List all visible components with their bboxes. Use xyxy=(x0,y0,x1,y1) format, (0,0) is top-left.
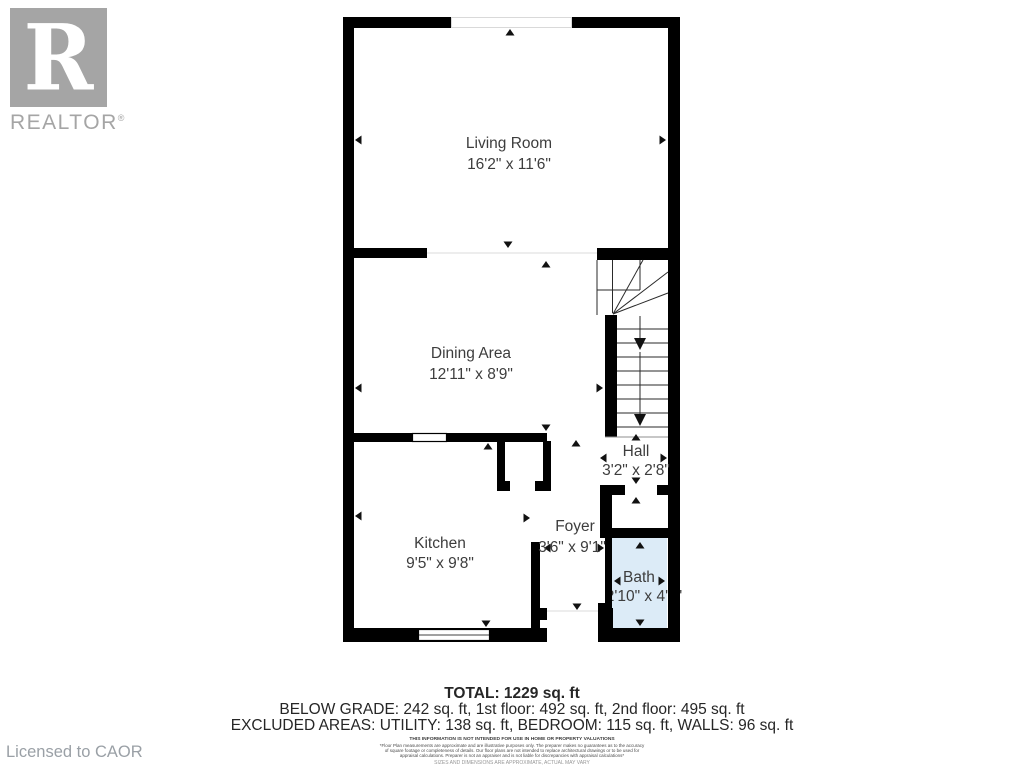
stair-down-arrow-icon xyxy=(634,338,646,350)
stair-down-arrow-icon xyxy=(634,414,646,426)
room-labels: Living Room 16'2" x 11'6" Dining Area 12… xyxy=(406,135,670,586)
floor-areas: BELOW GRADE: 242 sq. ft, 1st floor: 492 … xyxy=(0,702,1024,718)
area-summary: TOTAL: 1229 sq. ft BELOW GRADE: 242 sq. … xyxy=(0,685,1024,734)
floorplan-page: R REALTOR® 2'10" x 4'1" xyxy=(0,0,1024,768)
hall-label: Hall xyxy=(623,443,650,460)
foyer-label: Foyer xyxy=(555,518,595,535)
disclaimer-sizes-note: SIZES AND DIMENSIONS ARE APPROXIMATE, AC… xyxy=(0,760,1024,766)
floorplan-drawing: 2'10" x 4'1" xyxy=(0,0,1024,768)
dining-area-dims: 12'11" x 8'9" xyxy=(429,366,513,383)
foyer-dims: 3'6" x 9'1" xyxy=(538,539,606,556)
kitchen-dims: 9'5" x 9'8" xyxy=(406,555,474,572)
living-room-label: Living Room xyxy=(466,135,552,152)
dining-area-label: Dining Area xyxy=(431,345,512,362)
licensed-to-text: Licensed to CAOR xyxy=(6,743,143,762)
disclaimer: THIS INFORMATION IS NOT INTENDED FOR USE… xyxy=(0,737,1024,766)
kitchen-label: Kitchen xyxy=(414,535,466,552)
bath-label: Bath xyxy=(623,569,655,586)
total-area: TOTAL: 1229 sq. ft xyxy=(0,685,1024,702)
excluded-areas: EXCLUDED AREAS: UTILITY: 138 sq. ft, BED… xyxy=(0,718,1024,734)
disclaimer-line: appraisal calculations. Preparer is not … xyxy=(0,753,1024,758)
living-room-dims: 16'2" x 11'6" xyxy=(467,156,551,173)
hall-dims: 3'2" x 2'8" xyxy=(602,462,670,479)
